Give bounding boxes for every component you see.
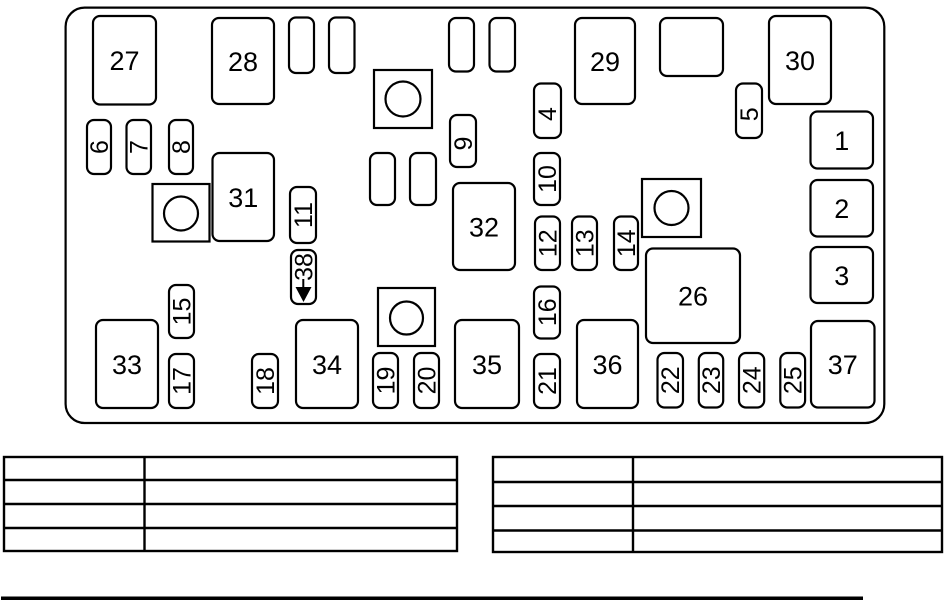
svg-text:13: 13 <box>571 229 599 257</box>
svg-text:12: 12 <box>534 229 562 257</box>
svg-text:15: 15 <box>168 298 196 326</box>
svg-text:11: 11 <box>290 202 318 228</box>
svg-text:29: 29 <box>590 47 620 77</box>
svg-text:18: 18 <box>252 367 280 395</box>
svg-text:35: 35 <box>472 350 502 380</box>
svg-text:20: 20 <box>413 367 441 395</box>
svg-text:19: 19 <box>372 367 400 395</box>
svg-text:8: 8 <box>168 140 196 154</box>
svg-text:1: 1 <box>834 126 849 156</box>
svg-text:37: 37 <box>828 350 858 380</box>
svg-text:28: 28 <box>228 47 258 77</box>
svg-text:26: 26 <box>678 282 708 312</box>
svg-text:24: 24 <box>738 366 766 394</box>
svg-text:30: 30 <box>785 46 815 76</box>
svg-text:23: 23 <box>698 366 726 394</box>
svg-text:9: 9 <box>450 137 478 151</box>
svg-text:34: 34 <box>312 350 342 380</box>
svg-text:6: 6 <box>86 140 114 154</box>
svg-text:16: 16 <box>534 298 562 326</box>
svg-text:5: 5 <box>736 107 764 121</box>
svg-text:36: 36 <box>592 350 622 380</box>
svg-text:10: 10 <box>534 165 562 193</box>
svg-text:7: 7 <box>126 140 154 154</box>
svg-text:33: 33 <box>112 350 142 380</box>
svg-text:27: 27 <box>109 46 139 76</box>
svg-text:25: 25 <box>779 366 807 394</box>
svg-text:38: 38 <box>290 253 318 281</box>
svg-text:4: 4 <box>534 107 562 121</box>
svg-text:32: 32 <box>469 212 499 242</box>
svg-text:17: 17 <box>168 367 196 395</box>
svg-text:22: 22 <box>657 366 685 394</box>
svg-text:2: 2 <box>834 194 849 224</box>
svg-text:14: 14 <box>613 229 641 257</box>
svg-text:3: 3 <box>834 261 849 291</box>
svg-text:31: 31 <box>228 183 258 213</box>
svg-text:21: 21 <box>534 367 562 395</box>
